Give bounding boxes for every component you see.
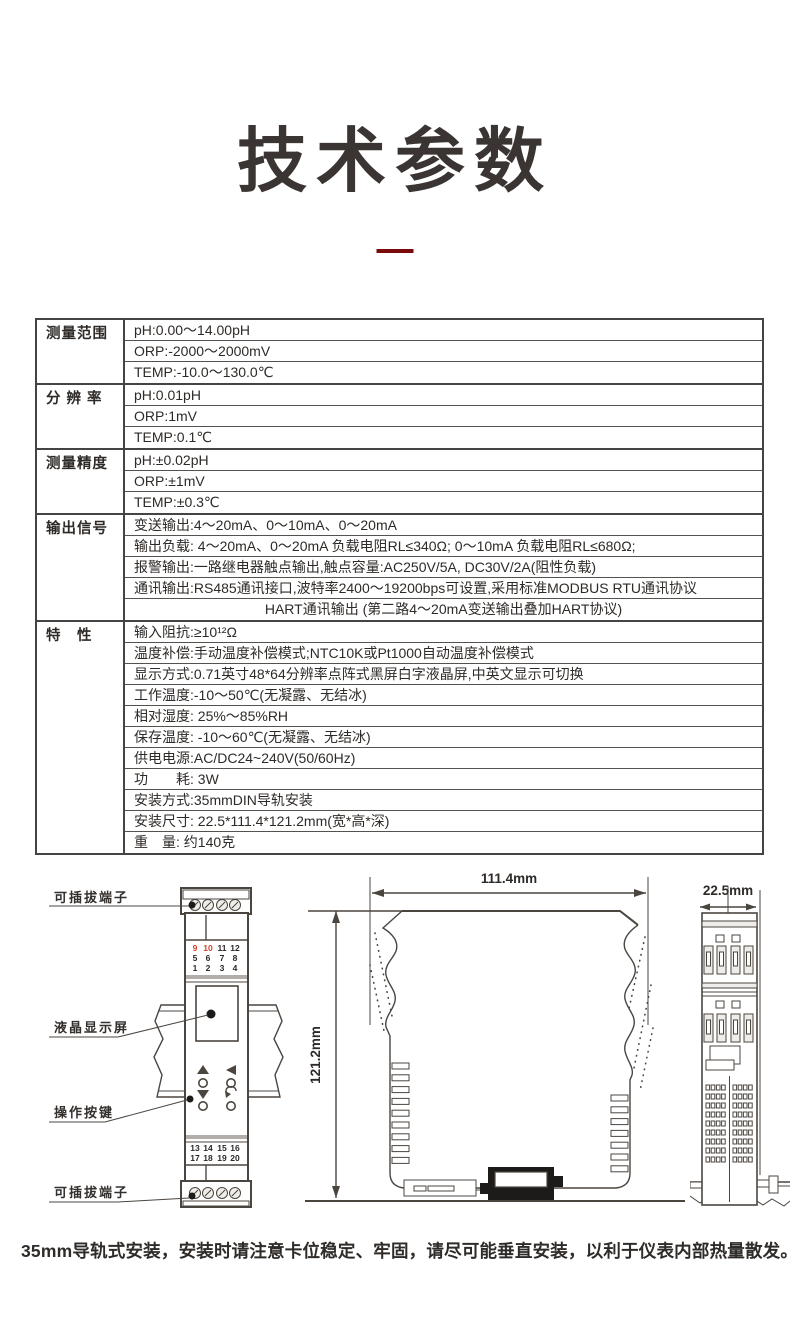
spec-group: 测量精度pH:±0.02pHORP:±1mVTEMP:±0.3℃: [37, 450, 762, 515]
spec-row: 输入阻抗:≥10¹²Ω: [125, 622, 762, 643]
installation-note: 35mm导轨式安装，安装时请注意卡位稳定、牢固，请尽可能垂直安装，以利于仪表内部…: [21, 1238, 781, 1263]
spec-group-rows: 变送输出:4～20mA、0～10mA、0～20mA输出负载: 4～20mA、0～…: [125, 515, 762, 620]
terminal-number: 9: [193, 943, 198, 953]
spec-row: 功 耗: 3W: [125, 769, 762, 790]
spec-row: pH:0.00～14.00pH: [125, 320, 762, 341]
terminal-number: 2: [206, 963, 211, 973]
spec-group: 测量范围pH:0.00～14.00pHORP:-2000～2000mVTEMP:…: [37, 320, 762, 385]
spec-row: 变送输出:4～20mA、0～10mA、0～20mA: [125, 515, 762, 536]
spec-row: 输出负载: 4～20mA、0～20mA 负载电阻RL≤340Ω; 0～10mA …: [125, 536, 762, 557]
spec-row: pH:0.01pH: [125, 385, 762, 406]
spec-group: 分 辨 率pH:0.01pHORP:1mVTEMP:0.1℃: [37, 385, 762, 450]
spec-row: 显示方式:0.71英寸48*64分辨率点阵式黑屏白字液晶屏,中英文显示可切换: [125, 664, 762, 685]
spec-group-label: 特 性: [37, 622, 125, 853]
terminal-number: 8: [233, 953, 238, 963]
terminal-number: 16: [230, 1143, 240, 1153]
dimension-diagram: 111.4mm 121.2mm: [300, 863, 690, 1220]
spec-row: 报警输出:一路继电器触点输出,触点容量:AC250V/5A, DC30V/2A(…: [125, 557, 762, 578]
spec-row: pH:±0.02pH: [125, 450, 762, 471]
vent-slots-left: [392, 1063, 409, 1163]
spec-row: 保存温度: -10～60℃(无凝露、无结冰): [125, 727, 762, 748]
down-button: [199, 1102, 207, 1110]
terminal-number: 1: [193, 963, 198, 973]
spec-row: 安装方式:35mmDIN导轨安装: [125, 790, 762, 811]
page-title: 技术参数: [0, 116, 790, 207]
spec-row: ORP:1mV: [125, 406, 762, 427]
spec-group: 特 性输入阻抗:≥10¹²Ω温度补偿:手动温度补偿模式;NTC10K或Pt100…: [37, 622, 762, 853]
spec-group-label: 输出信号: [37, 515, 125, 620]
spec-group: 输出信号变送输出:4～20mA、0～10mA、0～20mA输出负载: 4～20m…: [37, 515, 762, 622]
spec-group-rows: pH:0.01pHORP:1mVTEMP:0.1℃: [125, 385, 762, 448]
terminal-number: 3: [220, 963, 225, 973]
title-accent-bar: [377, 249, 414, 253]
enter-button: [227, 1102, 235, 1110]
lcd-window: [196, 986, 238, 1041]
spec-row: 安装尺寸: 22.5*111.4*121.2mm(宽*高*深): [125, 811, 762, 832]
spec-row: 通讯输出:RS485通讯接口,波特率2400～19200bps可设置,采用标准M…: [125, 578, 762, 599]
din-clip: [404, 1167, 563, 1201]
up-button: [199, 1079, 207, 1087]
spec-row: TEMP:-10.0～130.0℃: [125, 362, 762, 383]
spec-row: 重 量: 约140克: [125, 832, 762, 853]
terminal-number: 7: [220, 953, 225, 963]
vent-slots-right: [611, 1095, 628, 1172]
width-dimension-label: 111.4mm: [481, 871, 537, 886]
spec-group-rows: pH:±0.02pHORP:±1mVTEMP:±0.3℃: [125, 450, 762, 513]
spec-group-label: 测量范围: [37, 320, 125, 383]
spec-row: TEMP:±0.3℃: [125, 492, 762, 513]
spec-row: 供电电源:AC/DC24~240V(50/60Hz): [125, 748, 762, 769]
top-terminal-block: [181, 888, 251, 914]
terminal-number: 6: [206, 953, 211, 963]
spec-row: 温度补偿:手动温度补偿模式;NTC10K或Pt1000自动温度补偿模式: [125, 643, 762, 664]
spec-row: HART通讯输出 (第二路4～20mA变送输出叠加HART协议): [125, 599, 762, 620]
depth-view-diagram: 22.5mm: [690, 880, 790, 1225]
bottom-terminal-block: [181, 1181, 251, 1207]
spec-row: ORP:-2000～2000mV: [125, 341, 762, 362]
terminal-number: 19: [217, 1153, 227, 1163]
terminal-number: 15: [217, 1143, 227, 1153]
height-dimension-label: 121.2mm: [308, 1026, 323, 1084]
spec-row: ORP:±1mV: [125, 471, 762, 492]
spec-group-label: 分 辨 率: [37, 385, 125, 448]
terminal-number: 20: [230, 1153, 240, 1163]
terminal-number: 10: [203, 943, 213, 953]
spec-table: 测量范围pH:0.00～14.00pHORP:-2000～2000mVTEMP:…: [35, 318, 764, 855]
page: 技术参数 测量范围pH:0.00～14.00pHORP:-2000～2000mV…: [0, 0, 790, 1318]
label-display: 液晶显示屏: [54, 1020, 129, 1035]
terminal-number: 11: [218, 943, 227, 953]
spec-group-label: 测量精度: [37, 450, 125, 513]
terminal-number: 17: [190, 1153, 200, 1163]
spec-row: TEMP:0.1℃: [125, 427, 762, 448]
spec-group-rows: 输入阻抗:≥10¹²Ω温度补偿:手动温度补偿模式;NTC10K或Pt1000自动…: [125, 622, 762, 853]
label-buttons: 操作按键: [54, 1105, 114, 1120]
terminal-number: 13: [190, 1143, 200, 1153]
spec-row: 相对湿度: 25%～85%RH: [125, 706, 762, 727]
terminal-number: 4: [233, 963, 238, 973]
spec-group-rows: pH:0.00～14.00pHORP:-2000～2000mVTEMP:-10.…: [125, 320, 762, 383]
label-bottom-terminal: 可插拔端子: [54, 1185, 129, 1200]
label-top-terminal: 可插拔端子: [54, 890, 129, 905]
spec-row: 工作温度:-10～50℃(无凝露、无结冰): [125, 685, 762, 706]
terminal-number: 12: [230, 943, 240, 953]
terminal-number: 5: [193, 953, 198, 963]
front-view-diagram: 910111256781234: [30, 875, 300, 1220]
terminal-number: 18: [203, 1153, 213, 1163]
terminal-number: 14: [203, 1143, 213, 1153]
